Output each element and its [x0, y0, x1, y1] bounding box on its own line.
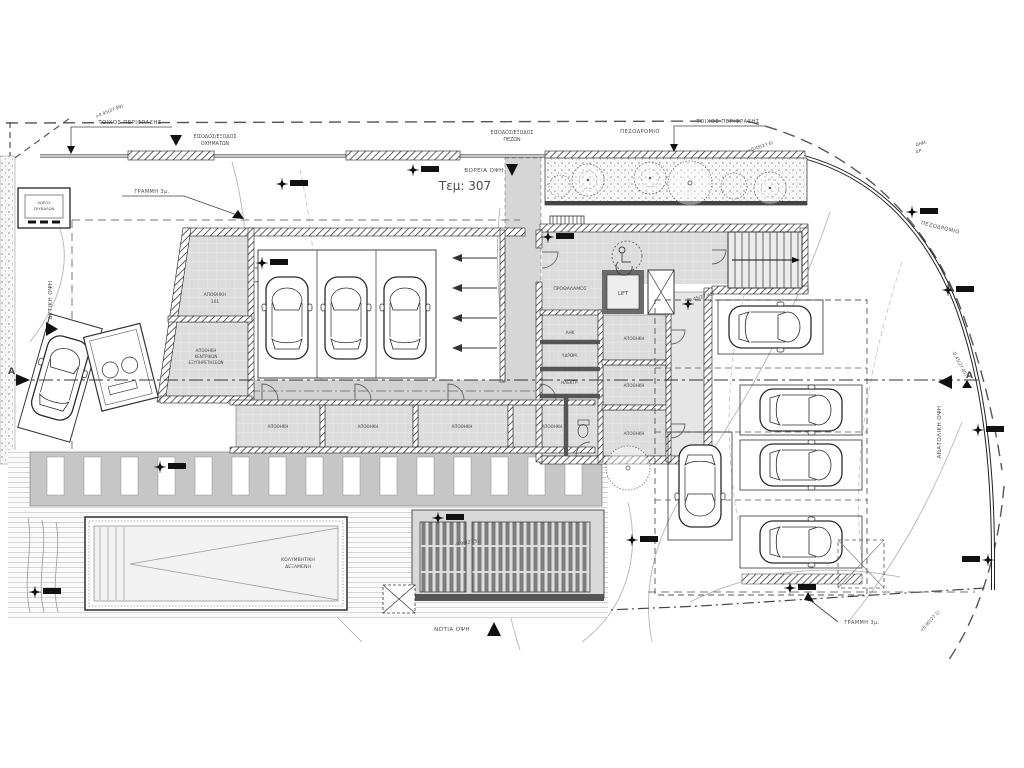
spot-level: +0.90(27.1): [919, 609, 941, 633]
plot-number: Τεμ: 307: [438, 179, 491, 193]
sidewalk-right-label: ΠΕΖΟΔΡΟΜΙΟ: [920, 220, 960, 235]
pool-label-line2: ΔΕΞΑΜΕΝΗ: [285, 564, 311, 570]
lobby-floor: [542, 232, 602, 310]
wall: [540, 367, 600, 371]
storage-room-label: ΑΠΟΘΗΚΗ: [624, 336, 645, 341]
storage-central-label3: ΕΞΥΠΗΡΕΤΗΣΕΩΝ: [188, 360, 223, 365]
svg-text:ΕΙΣΟΔΟΣ/ΕΞΟΔΟΣ: ΕΙΣΟΔΟΣ/ΕΞΟΔΟΣ: [194, 134, 237, 140]
wall: [540, 394, 600, 398]
setback-label-top: ΓΡΑΜΜΗ 3μ.: [122, 189, 244, 219]
wall: [704, 288, 712, 462]
public-road-label1: ΔΗΜ.: [915, 140, 927, 148]
wall: [248, 228, 254, 402]
section-arrow-left: [16, 374, 30, 386]
room-electrical-label: ΗΛΕΚΤΡ.: [561, 380, 579, 385]
south-elevation-label: ΝΟΤΙΑ ΟΨΗ: [434, 627, 470, 633]
building: LIFT ΑΠΟΘΗΚΗ 101 ΑΠΟΘΗΚΗ ΚΕΝΤΡΙΚΩΝ: [157, 224, 808, 464]
refuse-enclosure: ΧΩΡΟΣ ΣΚΥΒΑΛΩΝ: [18, 188, 70, 228]
room-ahk-label: ΑΗΚ: [566, 330, 575, 335]
wall: [540, 310, 602, 315]
wall: [602, 360, 668, 365]
svg-text:ΓΡΑΜΜΗ 3μ.: ΓΡΑΜΜΗ 3μ.: [844, 620, 879, 626]
carport: [258, 250, 436, 378]
storage-central-label1: ΑΠΟΘΗΚΗ: [196, 348, 217, 353]
planting-strip: [545, 158, 807, 205]
storage-room-label: ΑΠΟΘΗΚΗ: [624, 431, 645, 436]
wall: [540, 340, 600, 344]
parked-car: [760, 517, 842, 567]
wall: [666, 310, 671, 462]
swimming-pool: ΚΟΛΥΜΒΗΤΙΚΗ ΔΕΞΑΜΕΝΗ: [85, 517, 347, 610]
pergola-joist-strip: [30, 452, 602, 506]
room-hydro-label: ΥΔΡΟΜ.: [561, 353, 578, 358]
wall: [540, 224, 808, 232]
wall: [230, 400, 595, 405]
angled-parking: [18, 314, 102, 442]
section-arrow-right: [938, 375, 952, 389]
wall: [183, 228, 525, 236]
east-elevation-label: ΑΝΑΤΟΛΙΚΗ ΟΨΗ: [937, 406, 943, 459]
pool-label-line1: ΚΟΛΥΜΒΗΤΙΚΗ: [281, 557, 315, 563]
parked-car: [760, 385, 842, 435]
tree: [668, 161, 712, 205]
storage-row-label: ΑΠΟΘΗΚΗ: [542, 424, 563, 429]
pool-plant-structure: [84, 323, 159, 411]
svg-text:ΓΡΑΜΜΗ 3μ.: ΓΡΑΜΜΗ 3μ.: [134, 189, 169, 195]
fence-wall-segment: [346, 151, 460, 160]
tree: [634, 162, 666, 194]
west-elevation-label: ΔΥΤΙΚΗ ΟΨΗ: [48, 281, 54, 320]
storage-101-label2: 101: [211, 299, 220, 305]
wall: [413, 405, 418, 447]
parked-car: [262, 277, 312, 359]
lift-shaft: LIFT: [602, 270, 644, 314]
storage-101-label1: ΑΠΟΘΗΚΗ: [204, 292, 227, 298]
section-marker-left: A: [8, 367, 15, 377]
pedestrian-entrance-label: ΕΙΣΟΔΟΣ/ΕΞΟΔΟΣ ΠΕΖΩΝ: [491, 130, 534, 143]
storage-row-label: ΑΠΟΘΗΚΗ: [358, 424, 379, 429]
room-ahk-floor: [542, 314, 598, 340]
tree: [754, 172, 786, 204]
wall: [168, 316, 252, 322]
staircase: [728, 232, 802, 288]
wall: [564, 398, 568, 456]
storage-central-label2: ΚΕΝΤΡΙΚΩΝ: [195, 354, 218, 359]
parked-car: [321, 277, 371, 359]
drive-aisle-arrows: [452, 254, 497, 352]
spot-level: +0.45(27.99): [95, 103, 125, 120]
storage-row-label: ΑΠΟΘΗΚΗ: [452, 424, 473, 429]
service-shaft: [648, 270, 674, 314]
storage-central-floor: [164, 322, 248, 396]
site-plan-drawing: ΚΟΛΥΜΒΗΤΙΚΗ ΔΕΞΑΜΕΝΗ LIF: [0, 0, 1024, 768]
lobby-label: ΠΡΟΘΑΛΑΜΟΣ: [553, 286, 586, 292]
storage-room-label: ΑΠΟΘΗΚΗ: [624, 383, 645, 388]
parked-car: [760, 440, 842, 490]
fence-wall-label-left: ΤΟΙΧΟΣ ΠΕΡΙΦΡΑΞΗΣ: [67, 120, 172, 154]
lift-label: LIFT: [618, 291, 629, 297]
south-elevation-arrow: [487, 622, 501, 636]
wall: [536, 230, 542, 248]
site-plan-sheet: ΚΟΛΥΜΒΗΤΙΚΗ ΔΕΞΑΜΕΝΗ LIF: [0, 0, 1024, 768]
svg-text:ΕΙΣΟΔΟΣ/ΕΞΟΔΟΣ: ΕΙΣΟΔΟΣ/ΕΞΟΔΟΣ: [491, 130, 534, 136]
svg-text:ΠΕΖΩΝ: ΠΕΖΩΝ: [503, 137, 521, 143]
vehicle-entrance-label: ΕΙΣΟΔΟΣ/ΕΞΟΔΟΣ ΟΧΗΜΑΤΩΝ: [170, 134, 236, 147]
parked-car: [380, 277, 430, 359]
timber-deck: [412, 510, 604, 601]
svg-text:ΤΟΙΧΟΣ ΠΕΡΙΦΡΑΞΗΣ: ΤΟΙΧΟΣ ΠΕΡΙΦΡΑΞΗΣ: [695, 119, 760, 125]
storage-row-label: ΑΠΟΘΗΚΗ: [268, 424, 289, 429]
parked-car: [675, 445, 725, 527]
svg-text:ΟΧΗΜΑΤΩΝ: ΟΧΗΜΑΤΩΝ: [201, 141, 230, 147]
wall: [602, 405, 668, 410]
wall: [500, 230, 505, 382]
wall: [320, 405, 325, 447]
refuse-label2: ΣΚΥΒΑΛΩΝ: [34, 206, 55, 211]
public-road-label2: ΔΡ.: [915, 148, 923, 155]
inner-corridor: [671, 292, 704, 456]
sidewalk-top-label: ΠΕΖΟΔΡΟΜΙΟ: [620, 129, 660, 135]
tree: [606, 446, 650, 490]
planter-box: [383, 585, 415, 613]
parked-car: [729, 302, 811, 352]
spot-level: -0.45(27.45): [950, 350, 968, 377]
svg-text:ΤΟΙΧΟΣ ΠΕΡΙΦΡΑΞΗΣ: ΤΟΙΧΟΣ ΠΕΡΙΦΡΑΞΗΣ: [97, 120, 162, 126]
tree: [572, 164, 604, 196]
wall: [230, 447, 595, 453]
refuse-label1: ΧΩΡΟΣ: [37, 200, 51, 205]
wall: [508, 405, 513, 447]
wall: [598, 310, 603, 462]
wall: [536, 282, 542, 462]
north-elevation-label: ΒΟΡΕΙΑ ΟΨΗ: [464, 168, 503, 174]
fence-wall-segment: [128, 151, 214, 160]
